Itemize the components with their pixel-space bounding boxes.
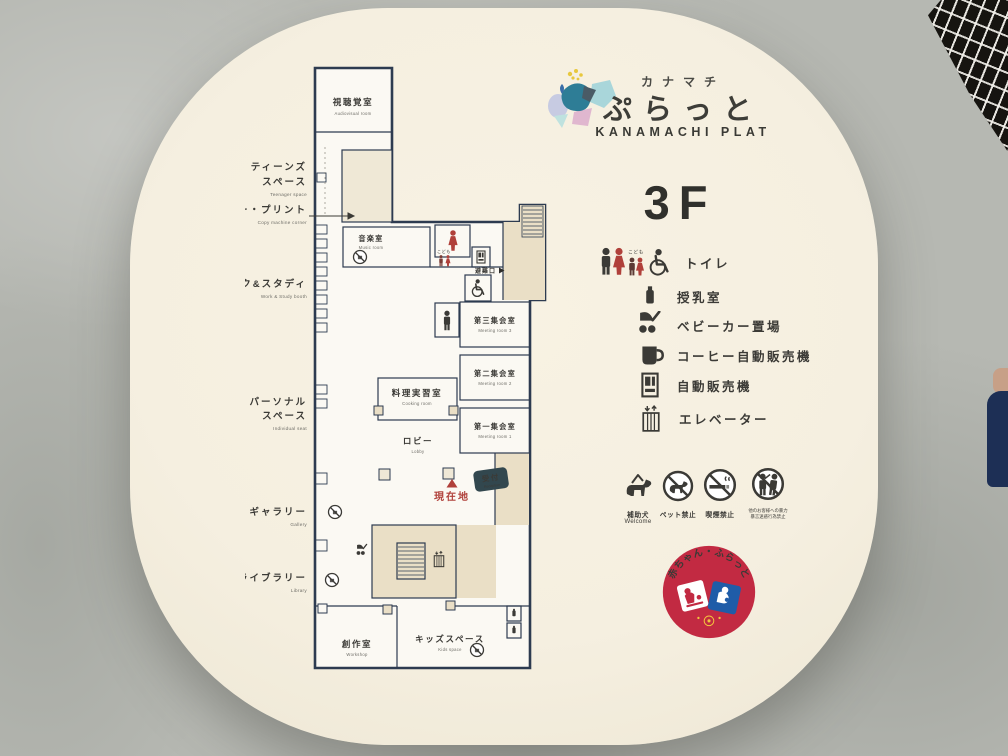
room-label-meeting1: 第一集会室	[474, 422, 516, 431]
toilet-child-boy-icon	[629, 258, 635, 276]
room-label-cooking-en: Cooking room	[402, 401, 432, 406]
legend-nursing-label: 授乳室	[677, 287, 722, 306]
library-no-food-icon	[326, 574, 339, 587]
assist-dog-label-jp: 補助犬	[616, 509, 660, 519]
rule-no-pets: ペット禁止	[656, 468, 700, 519]
room-label-meeting2: 第二集会室	[474, 369, 516, 378]
legend-row-toilet: こども トイレ	[598, 246, 730, 278]
logo-shape-aqua	[554, 114, 568, 128]
legend-row-coffee: コーヒー自動販売機	[636, 341, 812, 369]
room-label-audiovisual-en: Audiovisual room	[335, 111, 372, 116]
no-smoking-label: 喫煙禁止	[698, 509, 742, 519]
legend-row-stroller: ベビーカー置場	[636, 311, 782, 339]
room-label-meeting1-en: Meeting room 1	[478, 434, 512, 439]
no-violence-line2: 暴言迷惑行為禁止	[741, 514, 794, 520]
kids-space-no-food-icon	[471, 644, 484, 657]
akachan-flat-badge: 赤ちゃん・ふらっと	[659, 542, 759, 642]
toilet-icons: こども	[598, 246, 672, 278]
label-teens-en: Teenager space	[270, 192, 307, 197]
label-teens-2: スペース	[262, 177, 307, 188]
room-label-music: 音楽室	[358, 234, 383, 243]
stroller-icon	[636, 311, 664, 339]
toilet-child-label: こども	[628, 249, 644, 256]
room-label-kids: キッズスペース	[415, 634, 485, 644]
room-label-meeting3-en: Meeting room 3	[478, 328, 512, 333]
gallery-no-food-icon	[329, 506, 342, 519]
label-library-en: Library	[291, 588, 308, 593]
legend-row-elevator: エレベーター	[636, 401, 769, 435]
label-workstudy: ワーク&スタディ	[245, 278, 307, 290]
child-toilet-label: こども	[437, 248, 451, 254]
music-room-no-food-icon	[354, 251, 367, 264]
no-violence-line1: 他のお客様への暴力	[741, 508, 794, 514]
label-library: ライブラリー	[245, 572, 307, 584]
room-label-audiovisual: 視聴覚室	[332, 97, 373, 107]
legend-row-vending: 自動販売機	[636, 371, 752, 399]
room-label-lobby-en: Lobby	[412, 449, 426, 454]
legend-coffee-label: コーヒー自動販売機	[677, 346, 812, 365]
legend-elevator-label: エレベーター	[679, 409, 769, 428]
toilet-child-girl-icon	[636, 258, 644, 276]
label-personal-en: Individual seat	[273, 426, 307, 431]
floor-plan: こども 避難口 視聴覚室 Audiovisual room 音楽室 Music …	[245, 55, 560, 680]
rule-no-violence: 他のお客様への暴力 暴言迷惑行為禁止	[740, 465, 796, 520]
brand-name: ぷらっと	[583, 86, 783, 128]
label-personal-2: スペース	[262, 411, 307, 422]
room-label-meeting3: 第三集会室	[474, 316, 516, 325]
badge-blue-card	[707, 581, 741, 615]
no-violence-icon	[749, 465, 787, 503]
legend-stroller-label: ベビーカー置場	[677, 316, 782, 335]
room-label-kids-en: Kids space	[438, 647, 462, 652]
emergency-exit-label: 避難口	[474, 267, 496, 275]
rule-no-smoking: 喫煙禁止	[698, 466, 742, 519]
label-teens-1: ティーンズ	[251, 161, 307, 173]
toilet-woman-icon	[613, 248, 625, 275]
bystander-body	[987, 391, 1008, 487]
no-pets-icon	[660, 468, 696, 504]
toilet-wheelchair-icon	[651, 249, 668, 275]
rule-assist-dog: 補助犬 Welcome	[616, 470, 660, 525]
room-label-music-en: Music room	[359, 245, 384, 250]
room-label-workshop-en: Workshop	[346, 652, 368, 657]
legend-toilet-label: トイレ	[685, 253, 730, 272]
vending-machine-icon	[636, 371, 664, 399]
toilet-man-icon	[602, 248, 610, 275]
label-gallery: ギャラリー	[249, 506, 307, 518]
room-label-meeting2-en: Meeting room 2	[478, 381, 512, 386]
label-workstudy-en: Work & Study booth	[261, 294, 307, 299]
legend-vending-label: 自動販売機	[677, 376, 752, 395]
room-label-workshop: 創作室	[341, 639, 372, 649]
label-gallery-en: Gallery	[290, 522, 307, 527]
room-label-lobby: ロビー	[403, 436, 433, 446]
badge-circle	[663, 546, 755, 638]
assistance-dog-icon	[620, 470, 656, 504]
ceiling-grid-structure	[928, 0, 1008, 152]
you-are-here-label: 現在地	[434, 490, 470, 503]
label-personal-1: パーソナル	[249, 396, 307, 408]
photo-of-floor-sign: こども 避難口 視聴覚室 Audiovisual room 音楽室 Music …	[0, 0, 1008, 756]
elevator-icon	[636, 401, 666, 435]
label-copy-en: Copy machine corner	[258, 220, 308, 225]
brand-romaji: KANAMACHI PLAT	[583, 125, 783, 139]
room-label-cooking: 料理実習室	[392, 388, 443, 398]
label-copy: コピー・プリント	[245, 204, 307, 216]
nursing-bottle-icon	[636, 282, 664, 310]
assist-dog-label-en: Welcome	[616, 519, 660, 525]
logo-flowers	[568, 69, 583, 80]
legend-row-nursing: 授乳室	[636, 282, 722, 310]
no-smoking-icon	[701, 466, 739, 504]
coffee-cup-icon	[636, 341, 664, 369]
no-pets-label: ペット禁止	[656, 509, 700, 519]
floor-heading: 3F	[600, 175, 760, 230]
